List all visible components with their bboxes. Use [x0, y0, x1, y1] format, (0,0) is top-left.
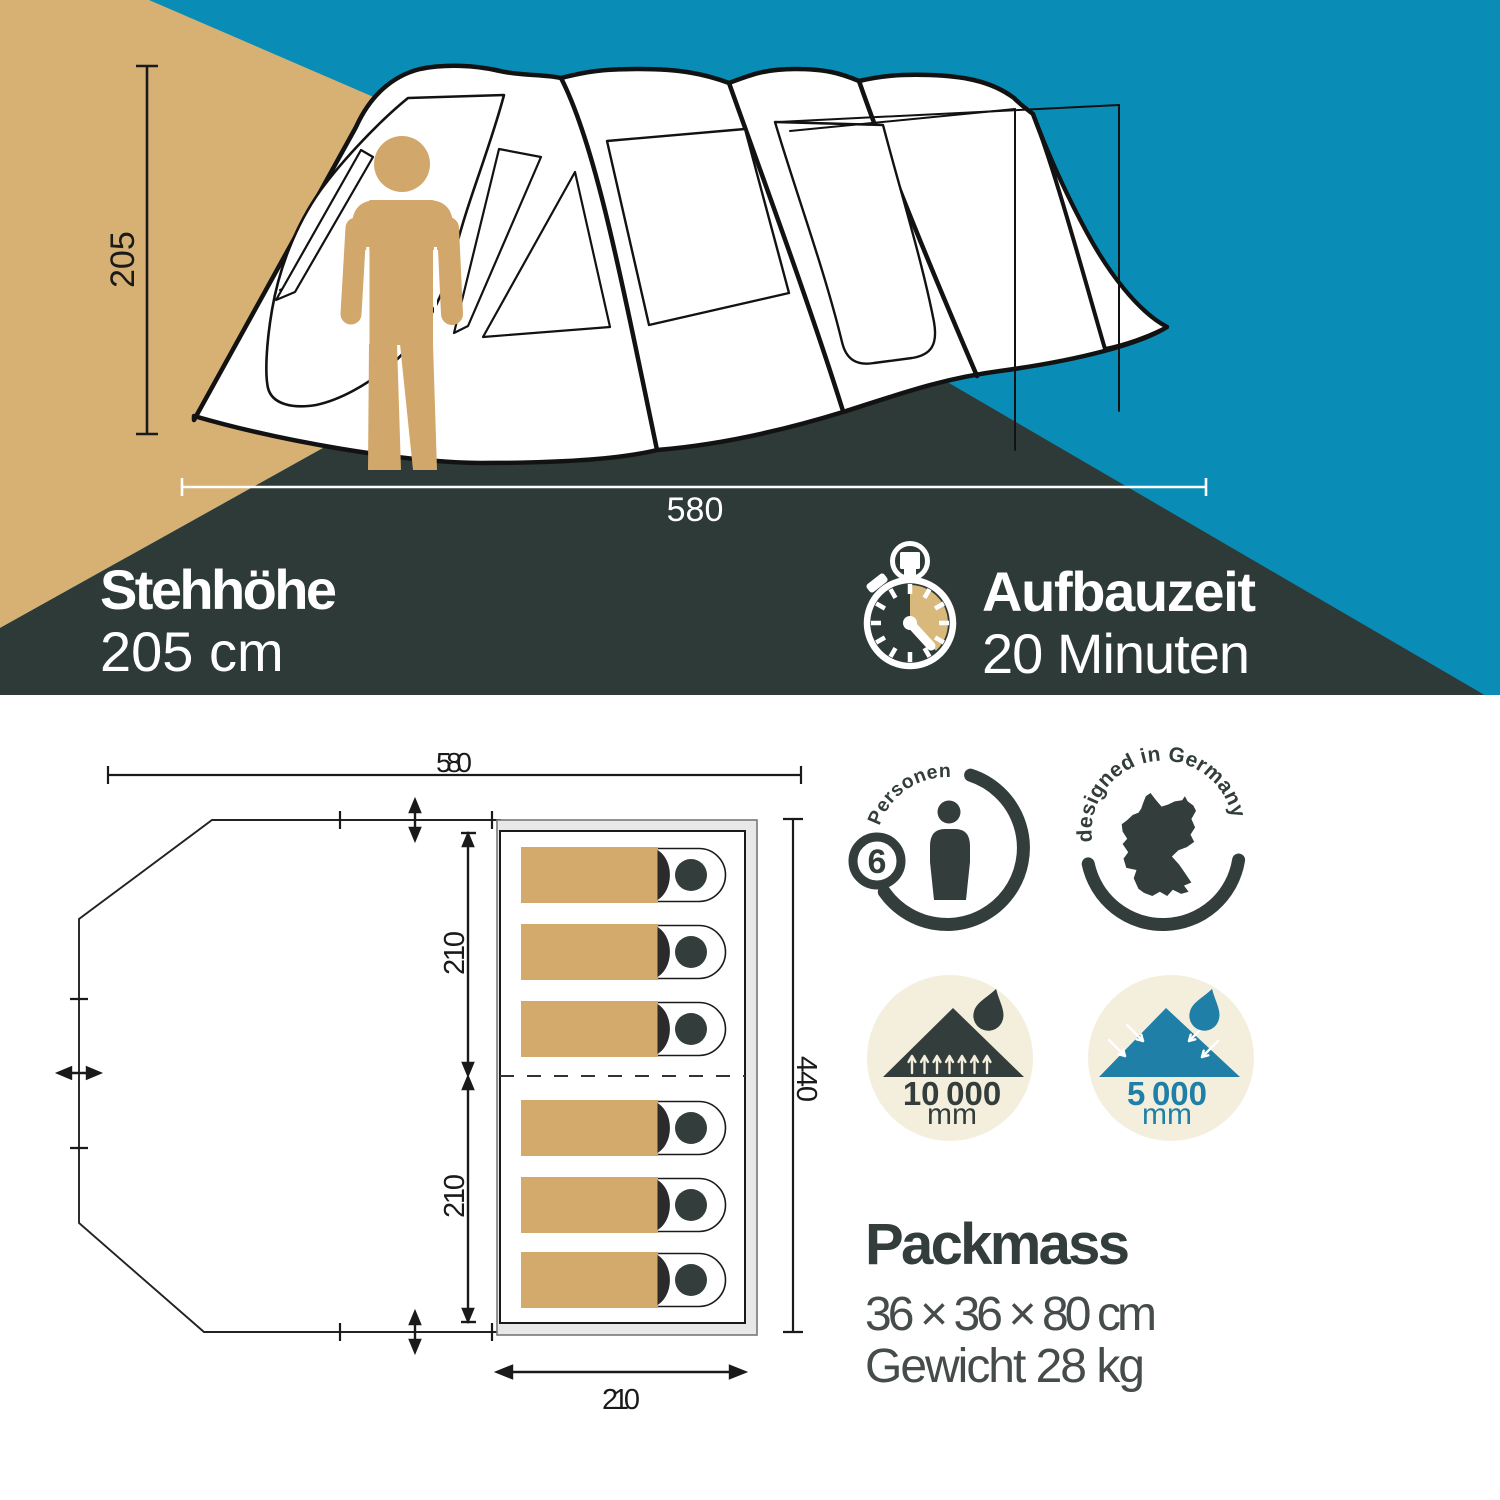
svg-text:mm: mm [927, 1098, 977, 1131]
svg-text:210: 210 [439, 1174, 471, 1218]
svg-text:205 cm: 205 cm [100, 620, 284, 683]
svg-text:210: 210 [602, 1384, 640, 1416]
svg-text:Stehhöhe: Stehhöhe [100, 558, 337, 621]
svg-text:205: 205 [104, 231, 142, 288]
svg-text:Personen: Personen [864, 760, 952, 828]
svg-text:210: 210 [439, 931, 471, 975]
svg-text:440: 440 [790, 1056, 822, 1102]
svg-text:6: 6 [868, 843, 887, 881]
svg-text:36 × 36 × 80 cm: 36 × 36 × 80 cm [865, 1288, 1157, 1341]
svg-text:Packmass: Packmass [865, 1212, 1130, 1277]
svg-text:580: 580 [436, 747, 472, 778]
svg-text:Aufbauzeit: Aufbauzeit [982, 560, 1256, 623]
svg-text:20 Minuten: 20 Minuten [982, 622, 1250, 685]
svg-text:580: 580 [667, 491, 724, 529]
svg-text:mm: mm [1142, 1098, 1192, 1131]
svg-text:Gewicht 28 kg: Gewicht 28 kg [865, 1340, 1145, 1393]
